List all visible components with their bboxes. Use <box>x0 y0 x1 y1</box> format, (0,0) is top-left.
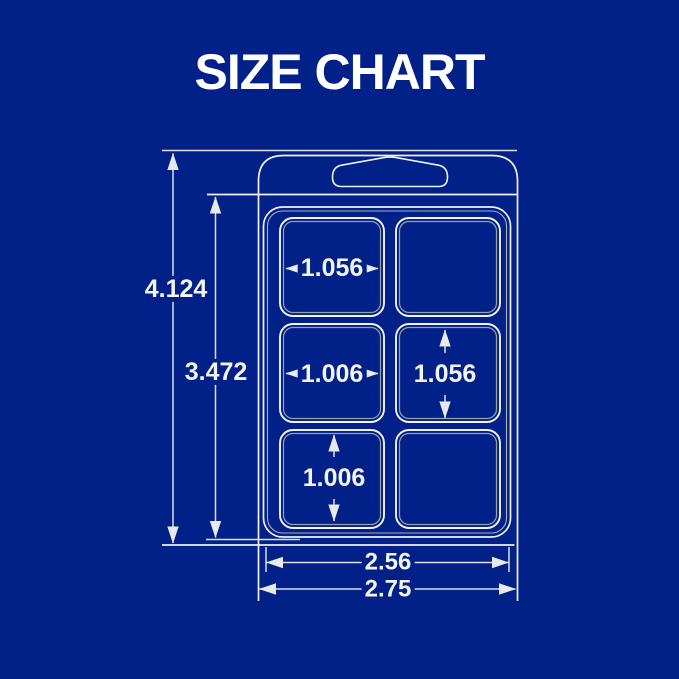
dim-label-total-width: 2.75 <box>362 576 415 601</box>
cavity-bottom-right <box>396 430 500 528</box>
clamshell-diagram <box>0 0 679 679</box>
dim-label-cavity-width-middle: 1.006 <box>298 361 367 387</box>
dim-label-cavity-height-bottom: 1.006 <box>300 465 369 491</box>
dim-label-body-height: 3.472 <box>182 359 251 385</box>
dim-label-total-height: 4.124 <box>142 276 211 302</box>
hang-hole <box>333 157 448 186</box>
cavity-top-right <box>396 218 500 316</box>
dim-label-cavity-height-middle: 1.056 <box>411 361 480 387</box>
dim-label-cavity-width-top: 1.056 <box>298 255 367 281</box>
size-chart-image: SIZE CHART <box>0 0 679 679</box>
dim-label-inner-width: 2.56 <box>362 549 415 574</box>
